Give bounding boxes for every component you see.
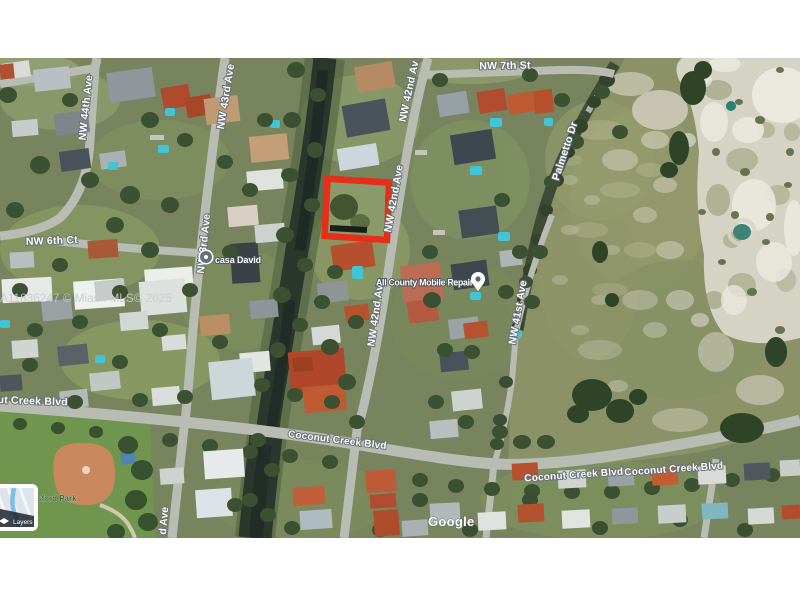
svg-text:A11836247 © Miami MLS© 2025: A11836247 © Miami MLS© 2025 [0,291,172,305]
svg-text:onut Creek Blvd: onut Creek Blvd [0,394,68,409]
svg-text:Layers: Layers [13,519,33,526]
svg-text:d Ave: d Ave [157,506,171,535]
svg-text:Google: Google [428,514,475,529]
svg-text:NW 7th St: NW 7th St [479,60,531,73]
svg-text:sford Park: sford Park [37,494,77,503]
svg-text:NW 6th Ct: NW 6th Ct [26,234,79,248]
svg-text:casa David: casa David [215,255,261,265]
svg-text:All County Mobile Repair: All County Mobile Repair [376,278,474,288]
